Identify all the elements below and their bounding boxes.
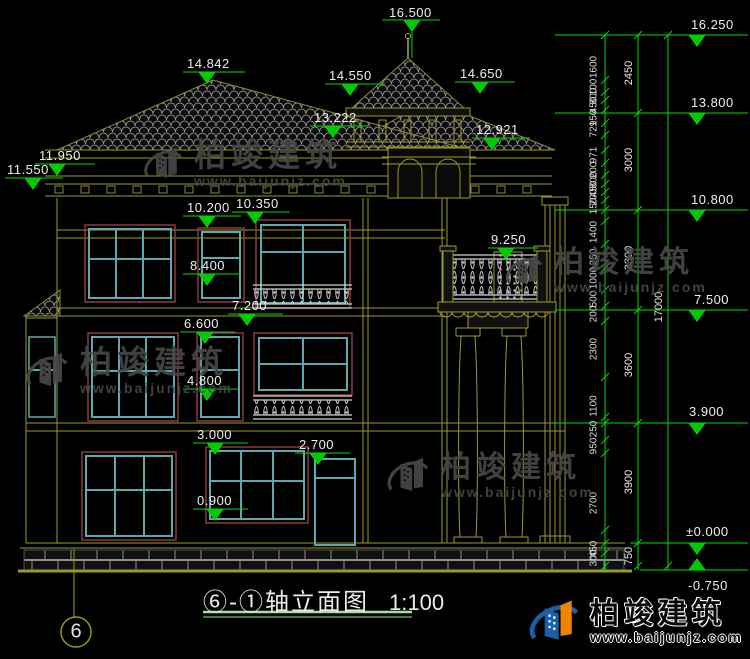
dim-label: 1400 bbox=[589, 221, 600, 243]
dim-label: 3600 bbox=[623, 353, 635, 377]
elevation-label: 13.222 bbox=[314, 110, 357, 125]
dim-label: 1100 bbox=[589, 395, 600, 417]
dim-label: 2450 bbox=[623, 61, 635, 85]
level-label: 10.800 bbox=[691, 192, 734, 207]
drawing-title-block: ⑥-①轴立面图 1:100 bbox=[203, 582, 444, 617]
level-label: 13.800 bbox=[691, 95, 734, 110]
elevation-label: 14.650 bbox=[460, 66, 503, 81]
elevation-label: 9.250 bbox=[491, 232, 526, 247]
watermark-url: www.baijunjz.com bbox=[194, 173, 347, 189]
elevation-label: 7.200 bbox=[232, 298, 267, 313]
level-label: 3.900 bbox=[689, 404, 724, 419]
elevation-label: 11.950 bbox=[39, 148, 81, 163]
elevation-label: 14.842 bbox=[187, 56, 230, 71]
watermark-logo-icon bbox=[140, 138, 186, 190]
elevation-label: 16.500 bbox=[389, 5, 432, 20]
watermark: 柏竣建筑 www.baijunjz.com bbox=[140, 138, 347, 190]
brand-name: 柏竣建筑 bbox=[590, 599, 743, 629]
elevation-label: 2.700 bbox=[299, 437, 334, 452]
dim-label: 729 bbox=[589, 121, 600, 138]
elevation-label: 10.350 bbox=[236, 196, 279, 211]
watermark-logo-icon bbox=[22, 343, 72, 399]
level-label: -0.750 bbox=[688, 578, 728, 593]
elevation-label: 11.550 bbox=[7, 162, 49, 177]
dim-label: 1600 bbox=[589, 56, 600, 78]
elevation-label: 8.400 bbox=[190, 258, 225, 273]
dim-label: 2300 bbox=[589, 338, 600, 360]
brand-url: www.baijunjz.com bbox=[590, 629, 743, 645]
elevation-label: 14.550 bbox=[329, 68, 372, 83]
elevation-label: 10.200 bbox=[187, 200, 230, 215]
elevation-label: 0.900 bbox=[197, 493, 232, 508]
elevation-label: 6.600 bbox=[184, 316, 219, 331]
brand-logo-icon bbox=[526, 592, 582, 652]
dim-label: 750 bbox=[623, 547, 635, 565]
drawing-title: ⑥-①轴立面图 bbox=[203, 582, 369, 617]
watermark: 柏竣建筑 www.baijunjz.com bbox=[502, 246, 707, 296]
elevation-label: 12.921 bbox=[476, 122, 519, 137]
watermark-name: 柏竣建筑 bbox=[194, 139, 347, 173]
dim-label: 150 bbox=[589, 198, 600, 215]
watermark-logo-icon bbox=[502, 246, 546, 296]
dim-label: 200 bbox=[589, 306, 600, 323]
watermark-name: 柏竣建筑 bbox=[554, 247, 707, 279]
level-label: ±0.000 bbox=[686, 524, 729, 539]
dim-label: 300 bbox=[589, 550, 600, 567]
dim-label: 250 bbox=[589, 421, 600, 438]
elevation-label: 3.000 bbox=[197, 427, 232, 442]
watermark-name: 柏竣建筑 bbox=[441, 452, 594, 484]
watermark-logo-icon bbox=[383, 448, 433, 504]
watermark-url: www.baijunjz.com bbox=[441, 484, 594, 500]
dim-label-total: 17000 bbox=[653, 292, 665, 323]
watermark-url: www.baijunjz.com bbox=[554, 279, 707, 295]
watermark: 柏竣建筑 www.baijunjz.com bbox=[22, 343, 233, 399]
cad-elevation-screenshot: 16.500 14.842 14.550 14.650 13.222 12.92… bbox=[0, 0, 750, 659]
level-label: 16.250 bbox=[691, 17, 734, 32]
watermark-name: 柏竣建筑 bbox=[80, 346, 233, 380]
axis-bubble-label: 6 bbox=[70, 621, 81, 644]
watermark-url: www.baijunjz.com bbox=[80, 380, 233, 396]
dim-label: 3900 bbox=[623, 470, 635, 494]
dim-label: 3000 bbox=[623, 148, 635, 172]
watermark: 柏竣建筑 www.baijunjz.com bbox=[383, 448, 594, 504]
elevation-drawing bbox=[0, 0, 750, 659]
drawing-scale: 1:100 bbox=[389, 590, 444, 616]
brand-logo: 柏竣建筑 www.baijunjz.com bbox=[526, 592, 743, 652]
